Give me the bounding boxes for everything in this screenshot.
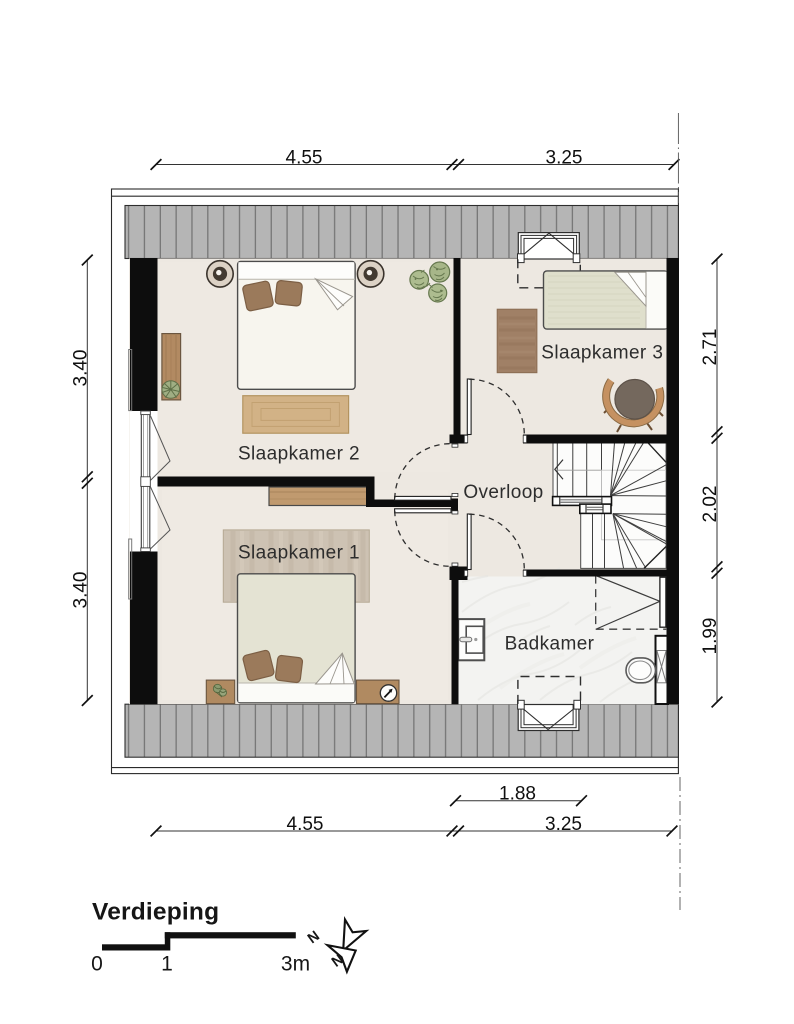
svg-text:Slaapkamer 1: Slaapkamer 1 [238,543,360,564]
svg-text:Badkamer: Badkamer [505,634,595,655]
svg-text:Verdieping: Verdieping [92,899,219,926]
svg-text:1.99: 1.99 [700,618,721,655]
svg-text:4.55: 4.55 [286,147,323,168]
svg-text:4.55: 4.55 [287,814,324,835]
svg-text:Overloop: Overloop [463,482,543,503]
svg-text:Slaapkamer 3: Slaapkamer 3 [541,343,663,364]
svg-text:3.40: 3.40 [70,350,91,387]
svg-text:2.02: 2.02 [700,486,721,523]
svg-text:3m: 3m [281,953,310,976]
svg-text:1: 1 [161,953,173,976]
svg-text:0: 0 [91,953,103,976]
svg-text:3.25: 3.25 [546,147,583,168]
svg-text:3.40: 3.40 [70,572,91,609]
svg-text:3.25: 3.25 [545,814,582,835]
svg-text:1.88: 1.88 [499,784,536,805]
svg-text:2.71: 2.71 [700,329,721,366]
svg-text:Slaapkamer 2: Slaapkamer 2 [238,444,360,465]
